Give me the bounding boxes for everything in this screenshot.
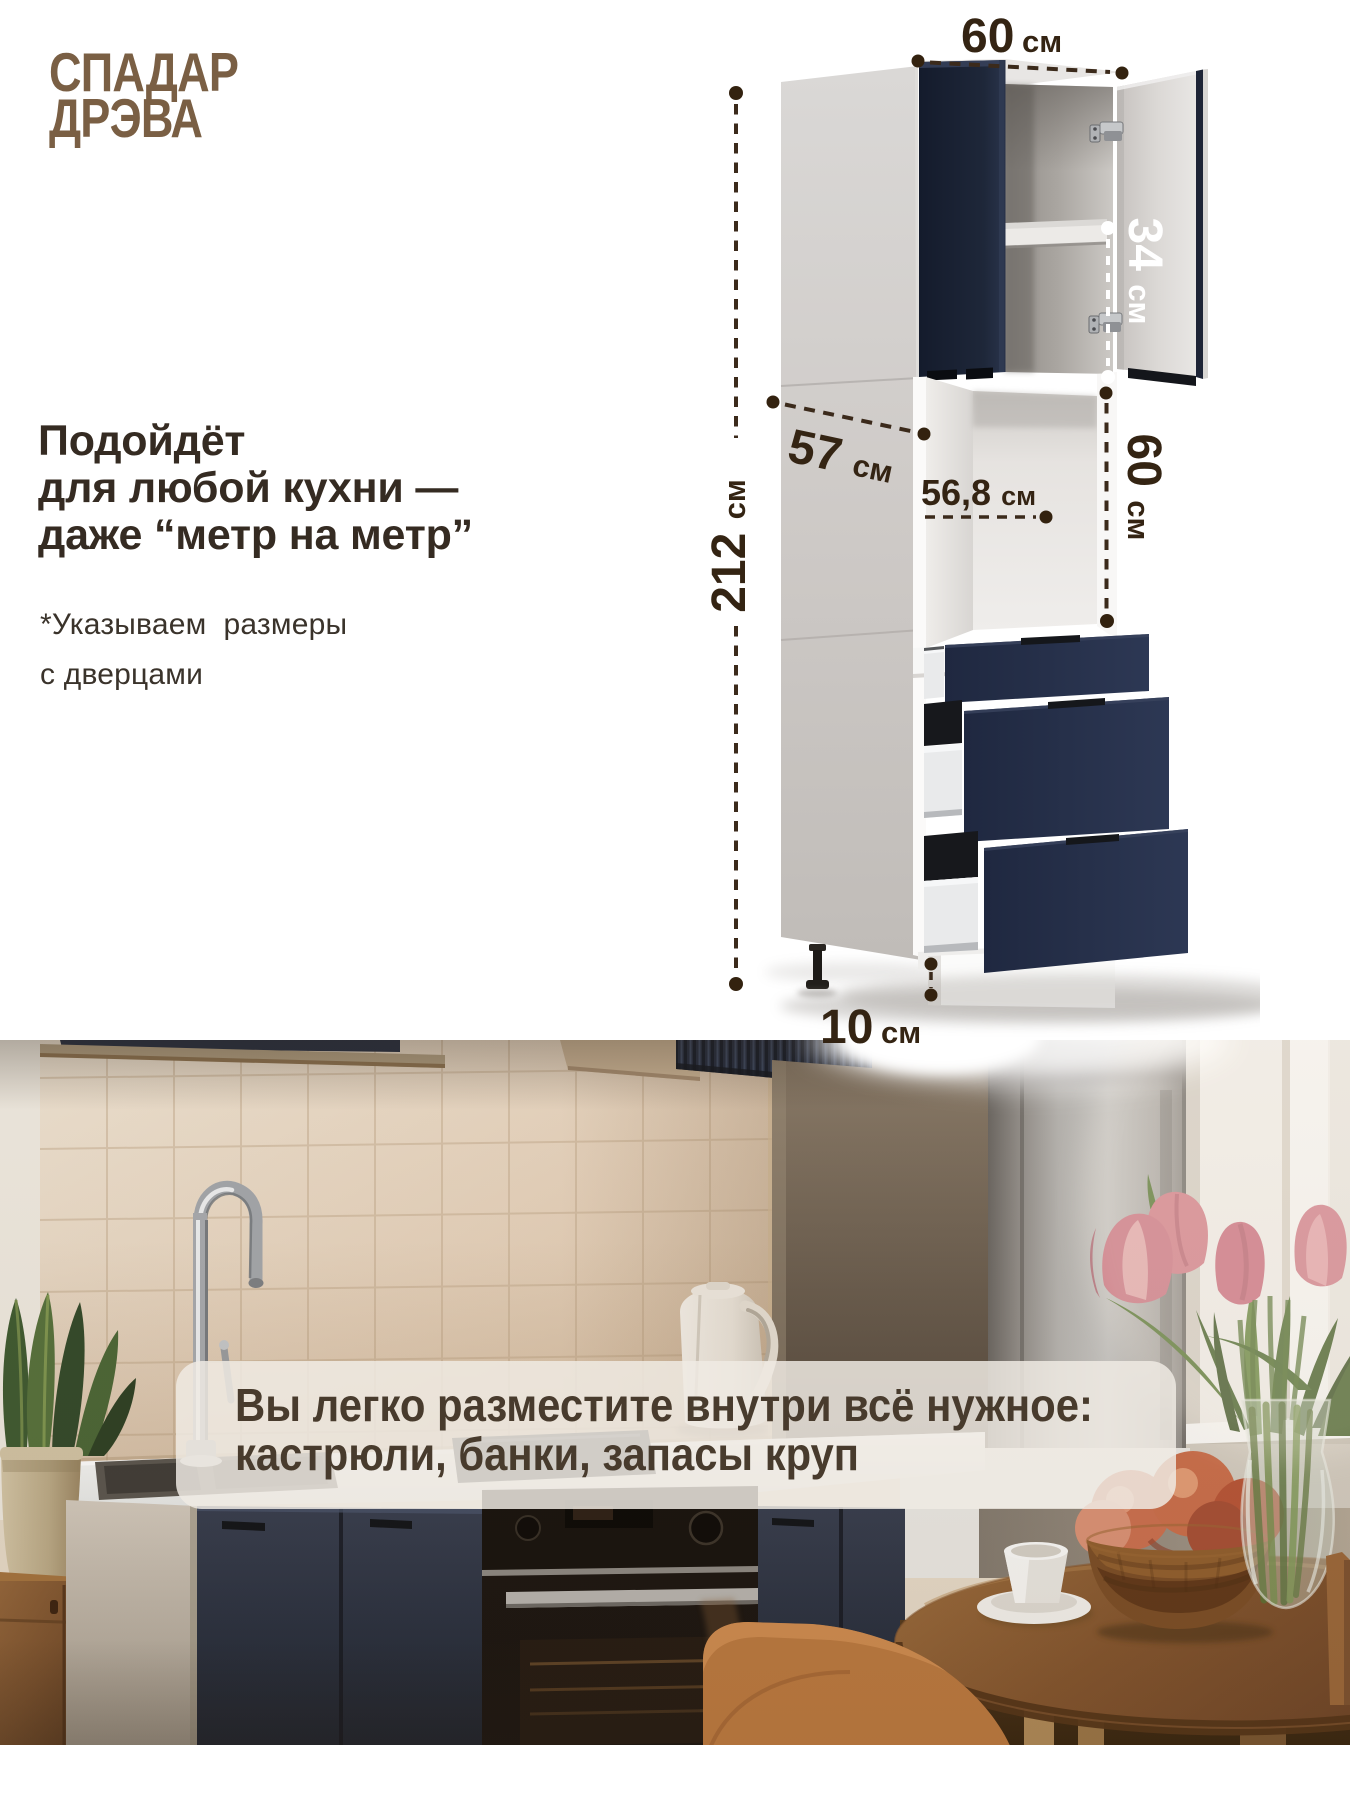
svg-text:60: 60 — [961, 10, 1014, 63]
svg-text:212 см: 212 см — [703, 479, 756, 613]
svg-text:10: 10 — [820, 1001, 873, 1054]
svg-text:кастрюли, банки, запасы круп: кастрюли, банки, запасы круп — [235, 1428, 859, 1480]
svg-text:см: см — [881, 1015, 921, 1050]
svg-text:60 см: 60 см — [1117, 434, 1170, 541]
svg-text:см: см — [1022, 24, 1062, 59]
svg-text:Вы легко разместите внутри всё: Вы легко разместите внутри всё нужное: — [235, 1379, 1093, 1431]
